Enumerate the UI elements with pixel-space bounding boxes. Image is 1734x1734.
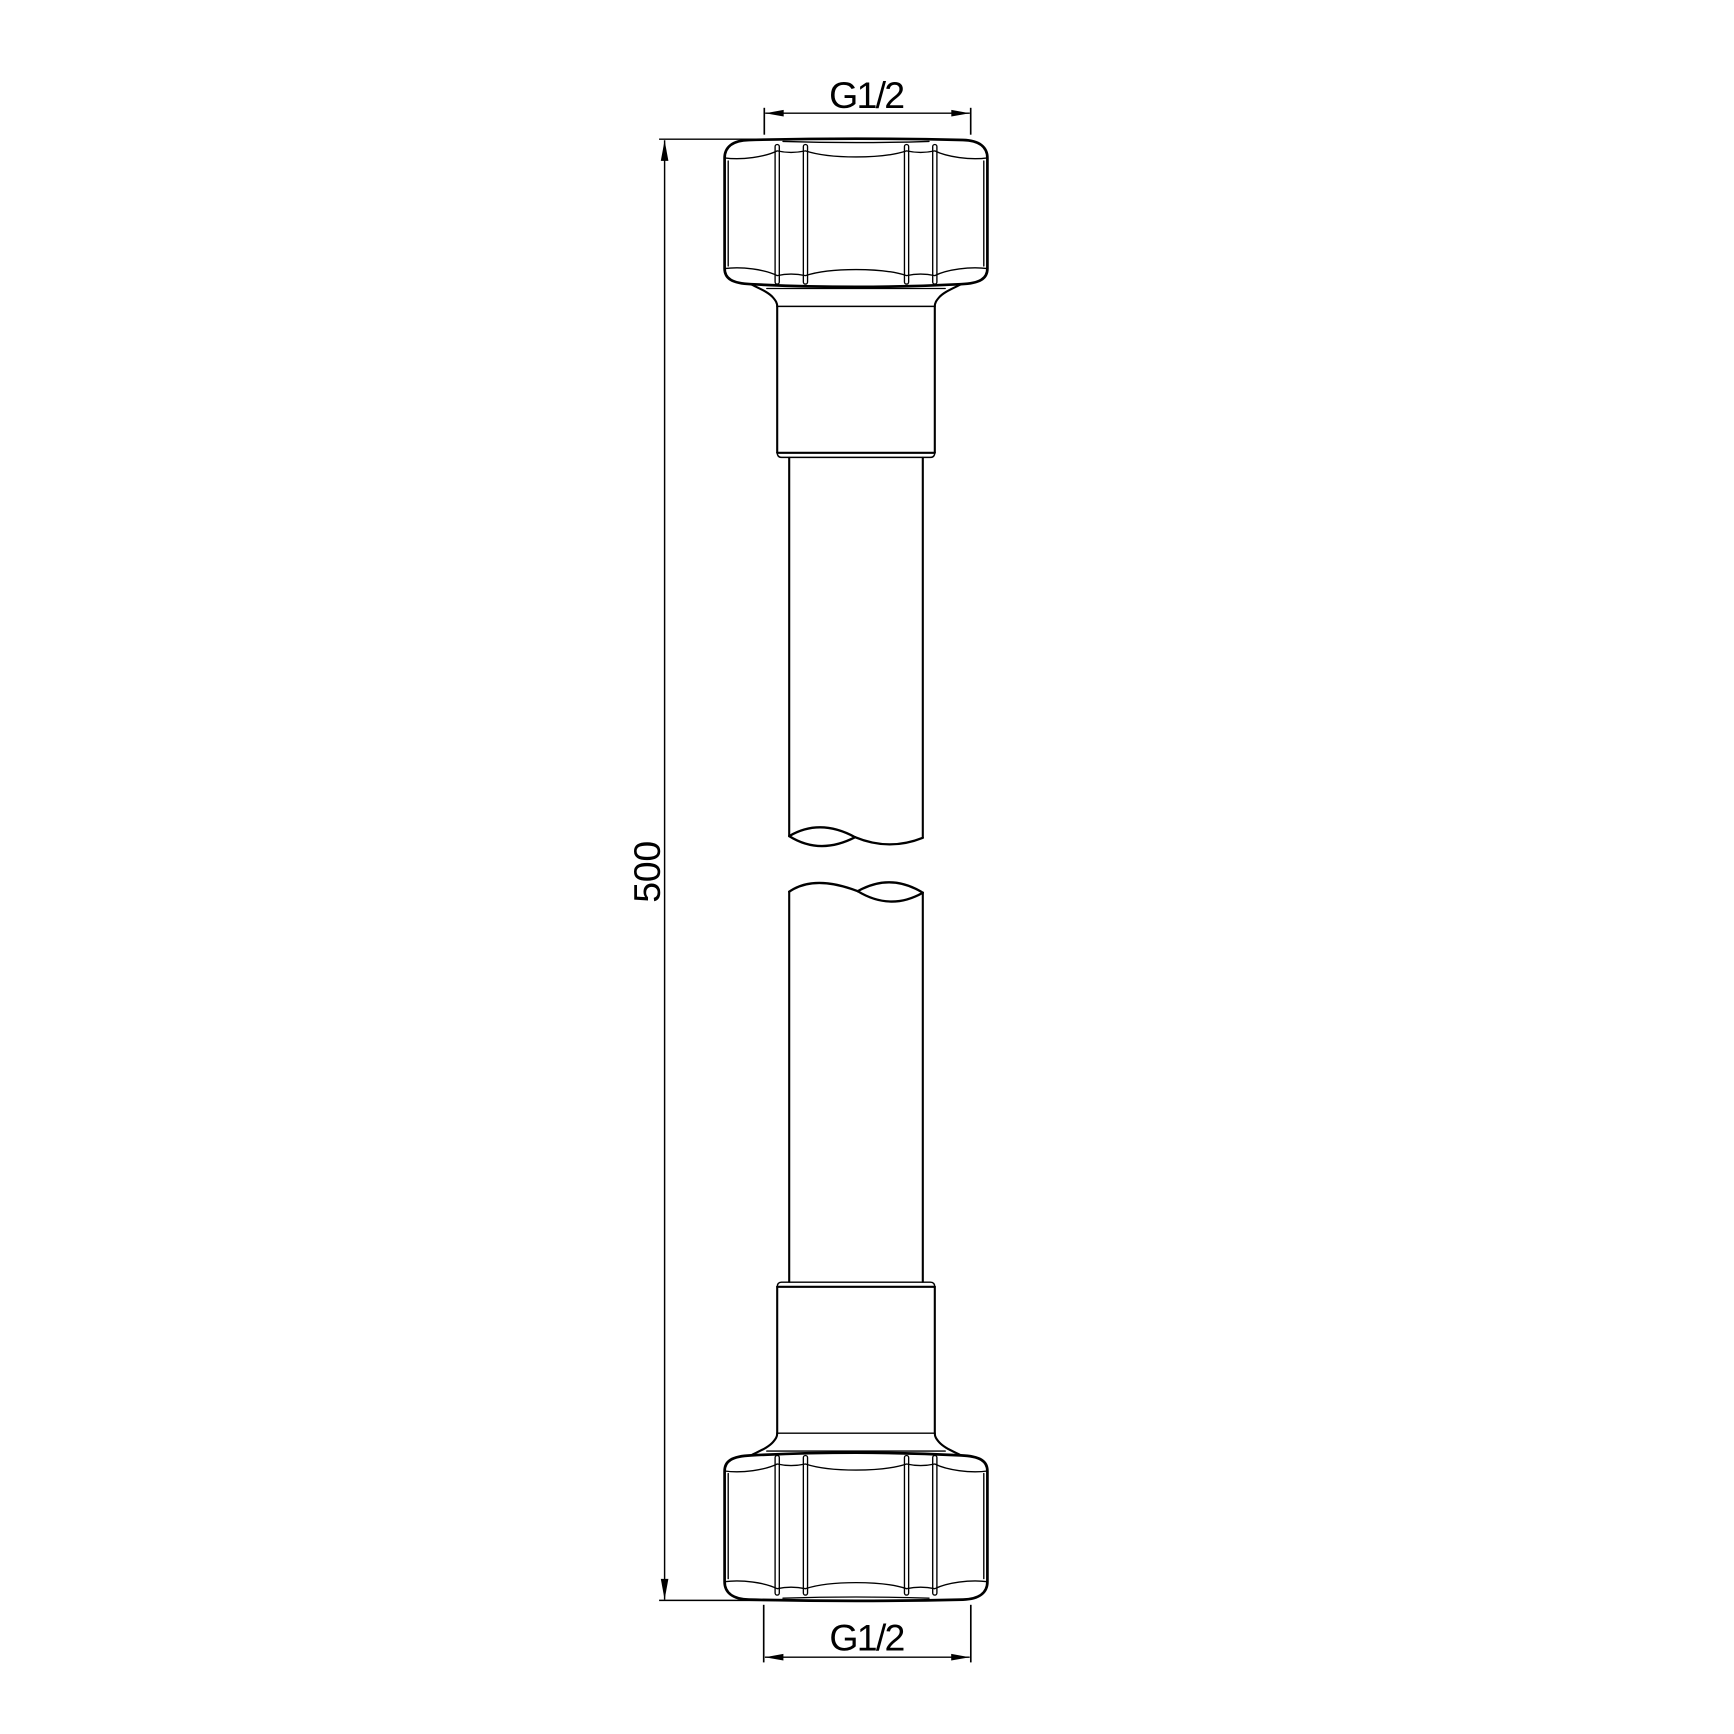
svg-text:G1/2: G1/2	[829, 74, 905, 116]
svg-text:G1/2: G1/2	[829, 1617, 905, 1659]
svg-text:500: 500	[626, 841, 668, 903]
